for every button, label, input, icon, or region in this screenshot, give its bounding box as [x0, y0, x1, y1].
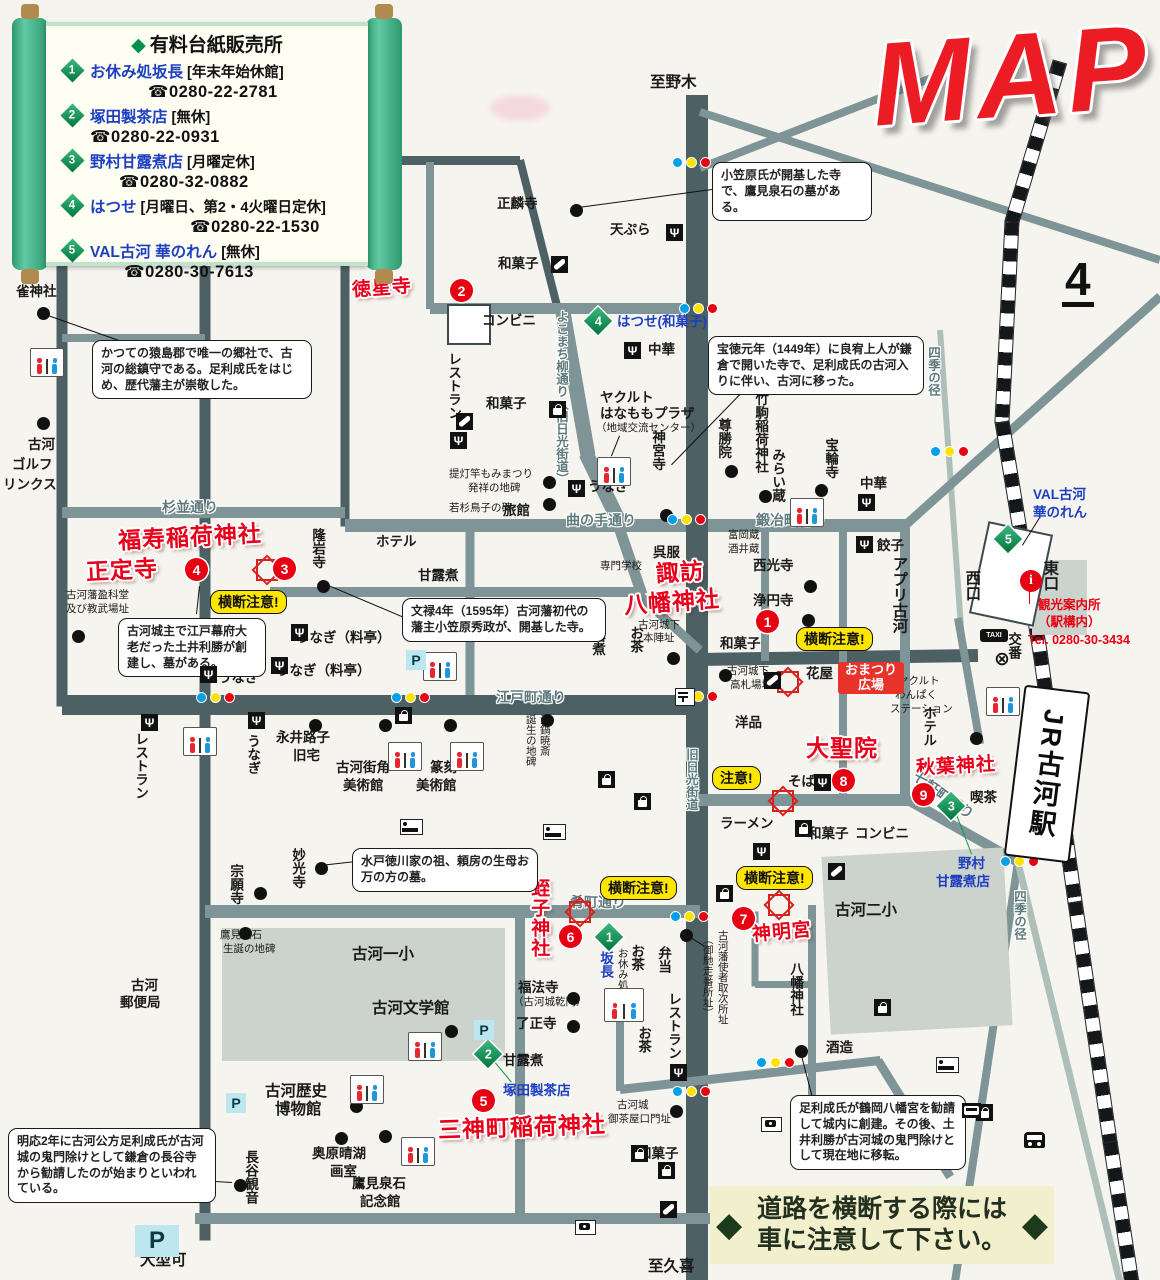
map-label: そば	[788, 774, 815, 789]
marker-red-9: 9	[912, 783, 935, 806]
marker-number: 3	[948, 799, 955, 813]
road-segment	[902, 293, 1160, 529]
map-label: 雀神社	[16, 284, 57, 299]
marker-red-7: 7	[732, 907, 755, 930]
toilet-icon	[450, 742, 484, 771]
traffic-signal-icon	[670, 911, 709, 922]
road-segment	[62, 695, 700, 715]
hotel-icon	[543, 824, 566, 840]
festival-badge-line: 広場	[845, 678, 897, 693]
map-label: うなぎ	[245, 734, 260, 775]
poi-dot	[667, 652, 680, 665]
toilet-icon	[423, 652, 457, 681]
poi-dot	[543, 498, 556, 511]
map-label: 中華	[648, 342, 675, 357]
map-label: レストラン	[133, 732, 148, 800]
festival-badge-line: おまつり	[845, 663, 897, 678]
map-label: 観光案内所	[1038, 598, 1101, 612]
legend-item-note: [無休]	[217, 245, 260, 261]
train-icon	[1024, 1132, 1045, 1148]
festival-plaza-badge: おまつり広場	[838, 662, 904, 694]
scroll-knob	[21, 4, 39, 19]
road-segment	[195, 1213, 722, 1224]
poi-dot	[317, 580, 330, 593]
legend-item-phone: ☎0280-30-7613	[90, 262, 254, 282]
poi-dot	[670, 1105, 683, 1118]
map-label: 和菓子	[808, 826, 849, 841]
shop-icon	[716, 885, 733, 902]
legend-item-text: 塚田製茶店 [無休]☎0280-22-0931	[90, 105, 226, 147]
map-label: 正麟寺	[497, 196, 538, 211]
parking-large-icon: P	[135, 1225, 179, 1257]
map-label: 洋品	[735, 715, 762, 730]
road-segment	[755, 981, 813, 988]
legend-item-text: 野村甘露煮店 [月曜定休]☎0280-32-0882	[90, 150, 255, 192]
road-segment	[620, 1056, 881, 1094]
shop-icon	[395, 707, 412, 724]
marker-number: 5	[1005, 532, 1012, 546]
map-label: リンクス	[3, 477, 57, 492]
legend-item-note: [無休]	[168, 110, 211, 126]
poi-dot	[567, 1020, 580, 1033]
toilet-icon	[604, 988, 644, 1022]
history-callout: 古河城主で江戸幕府大老だった土井利勝が創建し、墓がある。	[118, 618, 266, 677]
legend-diamond-icon: 2	[60, 103, 84, 127]
poi-dot	[680, 929, 693, 942]
poi-dot	[315, 862, 328, 875]
legend-item: 2塚田製茶店 [無休]☎0280-22-0931	[54, 105, 360, 147]
poi-dot	[37, 417, 50, 430]
map-label: （駅構内）	[1038, 615, 1101, 629]
map-label: お茶	[629, 944, 644, 971]
legend-item-number: 3	[69, 155, 75, 167]
legend-item-name: VAL古河 華のれん	[90, 244, 217, 261]
restaurant-icon: Ψ	[856, 536, 873, 553]
map-label: VAL古河	[1033, 487, 1086, 502]
legend-item-number: 5	[69, 245, 75, 257]
leader-line	[611, 436, 620, 456]
poi-dot	[543, 476, 556, 489]
poi-dot	[570, 204, 583, 217]
poi-dot	[795, 1045, 808, 1058]
history-callout: 小笠原氏が開基した寺で、鷹見泉石の墓がある。	[712, 162, 872, 221]
post-office-icon	[675, 688, 695, 706]
sweets-icon	[764, 672, 781, 689]
marker-number: 1	[606, 930, 613, 944]
legend-item-note: [月曜日、第2・4火曜日定休]	[137, 200, 326, 216]
map-label: うなぎ（料亭）	[296, 630, 391, 645]
poi-dot	[725, 465, 738, 478]
poi-dot	[567, 992, 580, 1005]
legend-item-phone: ☎0280-22-1530	[90, 217, 320, 237]
map-label: アプリ古河	[890, 556, 907, 634]
shop-icon	[658, 1162, 675, 1179]
map-label: 古河藩盈科堂	[66, 590, 129, 602]
map-label: 旧宅	[293, 748, 320, 763]
map-label: 塚田製茶店	[503, 1083, 571, 1098]
legend-item-number: 4	[69, 200, 75, 212]
scroll-knob	[21, 269, 39, 284]
map-label: 四季の径	[1012, 890, 1026, 940]
marker-red-4: 4	[185, 558, 208, 581]
scroll-knob	[375, 4, 393, 19]
map-label: 八幡神社	[788, 962, 803, 1016]
legend-item: 4はつせ [月曜日、第2・4火曜日定休]☎0280-22-1530	[54, 195, 360, 237]
traffic-signal-icon	[391, 692, 430, 703]
map-label: 富岡蔵	[728, 530, 760, 542]
map-label: 隆岩寺	[310, 528, 325, 569]
poi-dot	[234, 1179, 247, 1192]
legend-paper: ◆有料台紙販売所 1お休み処坂長 [年末年始休館]☎0280-22-27812塚…	[46, 22, 368, 266]
map-label: 曲の手通り	[566, 513, 636, 529]
road-segment	[697, 794, 908, 806]
map-label: 古河城下	[727, 666, 769, 678]
map-label: 酒井蔵	[728, 544, 760, 556]
caution-badge: 横断注意!	[210, 590, 287, 614]
map-label: うなぎ（料亭）	[276, 663, 371, 678]
map-label: 専門学校	[600, 561, 642, 573]
map-label: 至久喜	[648, 1258, 695, 1275]
caution-badge: 注意!	[712, 766, 761, 790]
map-label: 古河藩使者取次所址	[716, 930, 728, 1025]
map-label: ホテル	[376, 534, 417, 549]
parking-icon: P	[226, 1093, 246, 1113]
shop-icon	[598, 771, 615, 788]
poi-dot	[970, 732, 983, 745]
map-label: 郵便局	[120, 995, 161, 1010]
shop-icon	[795, 820, 812, 837]
railway-segment	[994, 221, 1019, 424]
map-label: 和菓子	[486, 396, 527, 411]
map-label: 古河文学館	[372, 1000, 450, 1017]
map-label: 記念館	[360, 1194, 401, 1209]
map-label: みらい蔵	[770, 448, 785, 502]
map-label: 浄円寺	[753, 593, 794, 608]
marker-red-3: 3	[273, 557, 296, 580]
map-label: 尊勝院	[716, 418, 731, 459]
map-label: 生誕の地碑	[223, 944, 276, 956]
road-segment	[516, 159, 561, 307]
station-name-label: JR古河駅	[1020, 707, 1075, 841]
legend-diamond-icon: 4	[60, 193, 84, 217]
map-label: 古河	[131, 978, 158, 993]
diamond-icon: ◆	[1022, 1208, 1048, 1242]
marker-green-1: 1	[595, 923, 623, 951]
map-label: お休み処	[616, 948, 628, 990]
legend-item-phone: ☎0280-22-0931	[90, 127, 220, 147]
map-label: 至野木	[650, 74, 697, 91]
caution-badge: 横断注意!	[600, 876, 677, 900]
marker-number: 2	[485, 1047, 492, 1061]
toilet-icon	[350, 1075, 384, 1104]
sweets-icon	[828, 863, 845, 880]
map-label: 福法寺	[518, 980, 559, 995]
map-label: レストラン	[446, 352, 461, 420]
shop-icon	[631, 1145, 648, 1162]
map-label: 了正寺	[516, 1016, 557, 1031]
koga-tourist-map: 至野木正麟寺天ぷら和菓子コンビニ中華はつせ(和菓子)徳星寺雀神社古河ゴルフリンク…	[0, 0, 1160, 1280]
map-label: 喫茶	[970, 790, 997, 805]
map-label: 正定寺	[85, 556, 158, 585]
history-callout: 明応2年に古河公方足利成氏が古河城の鬼門除けとして鎌倉の長谷寺から勧請したのが始…	[8, 1128, 216, 1203]
map-label: 及び教武場址	[66, 604, 129, 616]
scroll-knob	[375, 269, 393, 284]
legend-item-name: 野村甘露煮店	[90, 154, 183, 171]
map-label: レストラン	[666, 992, 681, 1060]
poi-dot	[379, 1130, 392, 1143]
restaurant-icon: Ψ	[670, 1064, 687, 1081]
sweets-icon	[660, 1201, 677, 1218]
map-label: 福寿稲荷神社	[117, 521, 262, 554]
map-label: 鷹見泉石	[352, 1176, 406, 1191]
restaurant-icon: Ψ	[624, 342, 641, 359]
road-segment	[616, 1018, 624, 1091]
marker-red-2: 2	[450, 279, 473, 302]
map-label: 餃子	[877, 538, 904, 553]
map-label: ヤクルト	[898, 676, 940, 688]
legend-item: 3野村甘露煮店 [月曜定休]☎0280-32-0882	[54, 150, 360, 192]
map-label: （御馳走番所址）	[701, 934, 713, 1018]
map-label: 古河城	[617, 1100, 649, 1112]
shop-icon	[634, 793, 651, 810]
map-label: 神宮寺	[650, 430, 665, 471]
map-label: 西光寺	[753, 558, 794, 573]
traffic-signal-icon	[667, 514, 706, 525]
map-label: はなももプラザ	[600, 406, 695, 421]
map-label: 東口	[1041, 560, 1058, 591]
map-label: （地域交流センター）	[596, 423, 701, 435]
tourist-info-icon: i	[1020, 570, 1042, 592]
map-label: 神明宮	[751, 919, 813, 945]
toilet-icon	[401, 1137, 435, 1166]
map-label: 和菓子	[720, 636, 761, 651]
history-callout: かつての猿島郡で唯一の郷社で、古河の総鎮守である。足利成氏をはじめ、歴代藩主が崇…	[92, 340, 312, 399]
poi-dot	[759, 490, 772, 503]
map-label: 古河一小	[352, 946, 414, 963]
poi-dot	[72, 630, 85, 643]
poi-dot	[802, 614, 815, 627]
map-label: コンビニ	[855, 826, 909, 841]
scroll-roller-left	[12, 18, 48, 270]
traffic-signal-icon	[930, 446, 969, 457]
scroll-roller-right	[366, 18, 402, 270]
map-label: 美術館	[416, 778, 457, 793]
map-label: 坂長	[598, 951, 613, 978]
restaurant-icon: Ψ	[814, 774, 831, 791]
map-label: 本陣址	[643, 633, 675, 645]
map-label: 江戸町通り	[496, 690, 566, 706]
map-label: お茶	[636, 1026, 651, 1053]
map-label: 誕生の地碑	[524, 714, 536, 767]
map-label: 杉並通り	[162, 500, 218, 516]
map-label: はつせ(和菓子)	[617, 314, 707, 329]
legend-item-note: [年末年始休館]	[183, 65, 284, 81]
legend-item-name: お休み処坂長	[90, 64, 183, 81]
map-label: 宝輪寺	[823, 438, 838, 479]
history-callout: 足利成氏が鶴岡八幡宮を勧請して城内に創建。その後、土井利勝が古河城の鬼門除けとし…	[790, 1095, 966, 1170]
traffic-signal-icon	[672, 1086, 711, 1097]
caution-badge: 横断注意!	[736, 866, 813, 890]
legend-item-name: 塚田製茶店	[90, 109, 168, 126]
toilet-icon	[30, 348, 64, 377]
restaurant-icon: Ψ	[141, 714, 158, 731]
map-label: 古河二小	[835, 902, 897, 919]
legend-item-text: はつせ [月曜日、第2・4火曜日定休]☎0280-22-1530	[90, 195, 326, 237]
sweets-icon	[456, 413, 473, 430]
map-label: 博物館	[275, 1101, 322, 1118]
map-label: 古河	[28, 437, 55, 452]
legend-diamond-icon: 1	[60, 58, 84, 82]
map-label: 旧日光街道	[684, 748, 698, 811]
diamond-icon: ◆	[716, 1208, 742, 1242]
restaurant-icon: Ψ	[291, 624, 308, 641]
legend-item: 1お休み処坂長 [年末年始休館]☎0280-22-2781	[54, 60, 360, 102]
hotel-icon	[936, 1057, 959, 1073]
traffic-signal-icon	[196, 692, 235, 703]
restaurant-icon: Ψ	[450, 432, 467, 449]
map-label: 四季の径	[926, 346, 940, 396]
monument-icon	[575, 1220, 596, 1235]
map-label: 御茶屋口門址	[608, 1114, 671, 1126]
legend-items: 1お休み処坂長 [年末年始休館]☎0280-22-27812塚田製茶店 [無休]…	[54, 60, 360, 282]
map-label: よこまち柳通り（旧日光街道）	[554, 310, 568, 485]
poi-dot	[335, 1132, 348, 1145]
hotel-icon	[400, 819, 423, 835]
poi-dot	[254, 887, 267, 900]
restaurant-icon: Ψ	[200, 666, 217, 683]
restaurant-icon: Ψ	[666, 224, 683, 241]
toilet-icon	[408, 1032, 442, 1061]
traffic-signal-icon	[679, 303, 718, 314]
map-label: ゴルフ	[12, 457, 53, 472]
legend-diamond-icon: 5	[60, 238, 84, 262]
marker-red-8: 8	[832, 769, 855, 792]
crossing-warning-banner: ◆ 道路を横断する際には 車に注意して下さい。 ◆	[710, 1186, 1054, 1264]
map-label: 宗願寺	[228, 864, 243, 905]
restaurant-icon: Ψ	[858, 494, 875, 511]
poi-dot	[37, 307, 50, 320]
route-4-shield: 4	[1062, 258, 1094, 307]
map-label: 美術館	[343, 778, 384, 793]
map-label: 三神町稲荷神社	[438, 1112, 607, 1144]
restaurant-icon: Ψ	[271, 657, 288, 674]
crossing-burst-icon	[767, 785, 798, 816]
warning-text: 道路を横断する際には 車に注意して下さい。	[757, 1194, 1007, 1257]
caution-badge: 横断注意!	[796, 627, 873, 651]
restaurant-icon: Ψ	[248, 712, 265, 729]
history-callout: 文禄4年（1595年）古河藩初代の藩主小笠原秀政が、開基した寺。	[402, 598, 606, 642]
map-label: 甘露煮店	[936, 874, 990, 889]
shop-icon	[874, 999, 891, 1016]
map-label: 甘露煮	[503, 1053, 544, 1068]
poi-dot	[815, 484, 828, 497]
map-label: Tel. 0280-30-3434	[1028, 633, 1130, 647]
traffic-signal-icon	[756, 1057, 795, 1068]
restaurant-icon: Ψ	[753, 843, 770, 860]
toilet-icon	[597, 457, 631, 486]
parking-icon: P	[474, 1020, 494, 1040]
legend-item-phone: ☎0280-32-0882	[90, 172, 249, 192]
map-label: コンビニ	[482, 313, 536, 328]
toilet-icon	[388, 742, 422, 771]
map-label: 永井路子	[276, 730, 330, 745]
monument-icon	[761, 1117, 782, 1132]
legend-scroll: ◆有料台紙販売所 1お休み処坂長 [年末年始休館]☎0280-22-27812塚…	[6, 2, 408, 286]
map-label: ラーメン	[720, 816, 773, 831]
poi-dot	[379, 719, 392, 732]
map-label: 弁当	[656, 946, 671, 973]
map-label: 竹駒稲荷神社	[753, 392, 768, 473]
police-box-icon: ⊗	[994, 650, 1010, 669]
map-label: 妙光寺	[290, 848, 305, 889]
map-label: 奥原晴湖	[312, 1146, 366, 1161]
history-callout: 宝徳元年（1449年）に良宥上人が鎌倉で開いた寺で、足利成氏の古河入りに伴い、古…	[708, 336, 924, 395]
map-label: 提灯竿もみまつり	[449, 469, 533, 481]
poi-dot	[804, 580, 817, 593]
map-label: 古河歴史	[265, 1083, 327, 1100]
map-label: 花屋	[806, 666, 833, 681]
map-label: 大聖院	[806, 736, 878, 762]
legend-diamond-icon: 3	[60, 148, 84, 172]
map-label: 野村	[958, 856, 985, 871]
railway-segment	[1103, 1140, 1140, 1280]
map-label: 発祥の地碑	[468, 483, 521, 495]
legend-item-text: お休み処坂長 [年末年始休館]☎0280-22-2781	[90, 60, 284, 102]
map-label: 諏訪	[655, 558, 705, 587]
legend-item-phone: ☎0280-22-2781	[90, 82, 278, 102]
legend-title: ◆有料台紙販売所	[54, 30, 360, 57]
legend-item-text: VAL古河 華のれん [無休]☎0280-30-7613	[90, 240, 260, 282]
legend-item-number: 2	[69, 110, 75, 122]
toilet-icon	[790, 498, 824, 527]
taxi-icon: TAXI	[980, 629, 1008, 642]
map-label: 旅館	[503, 503, 530, 518]
sweets-icon	[551, 256, 568, 273]
poi-dot	[444, 719, 457, 732]
restaurant-icon: Ψ	[568, 480, 585, 497]
poi-dot	[541, 714, 554, 727]
map-label: 古河街角	[336, 760, 390, 775]
legend-item-name: はつせ	[90, 199, 137, 216]
map-label: 華のれん	[1033, 505, 1087, 520]
poi-dot	[445, 1025, 458, 1038]
toilet-icon	[986, 687, 1020, 716]
map-label: 西口	[963, 570, 980, 601]
map-label: 古河城下	[638, 620, 680, 632]
traffic-signal-icon	[672, 157, 711, 168]
poi-dot	[309, 719, 322, 732]
marker-red-5: 5	[472, 1089, 495, 1112]
map-label: 長谷観音	[243, 1150, 258, 1204]
parking-icon: P	[406, 650, 426, 670]
legend-item-number: 1	[69, 65, 75, 77]
marker-red-6: 6	[559, 925, 582, 948]
map-label: 天ぷら	[610, 222, 651, 237]
crossing-burst-icon	[564, 896, 595, 927]
road-segment	[426, 162, 434, 309]
poi-dot	[719, 669, 732, 682]
legend-item: 5VAL古河 華のれん [無休]☎0280-30-7613	[54, 240, 360, 282]
diamond-icon: ◆	[131, 35, 146, 56]
crossing-burst-icon	[763, 889, 794, 920]
map-label: 酒造	[826, 1040, 853, 1055]
map-label: 和菓子	[498, 256, 539, 271]
poi-dot	[239, 927, 252, 940]
marker-number: 4	[595, 314, 602, 328]
legend-item-note: [月曜定休]	[183, 155, 255, 171]
marker-red-1: 1	[756, 610, 779, 633]
map-label: 甘露煮	[418, 568, 459, 583]
